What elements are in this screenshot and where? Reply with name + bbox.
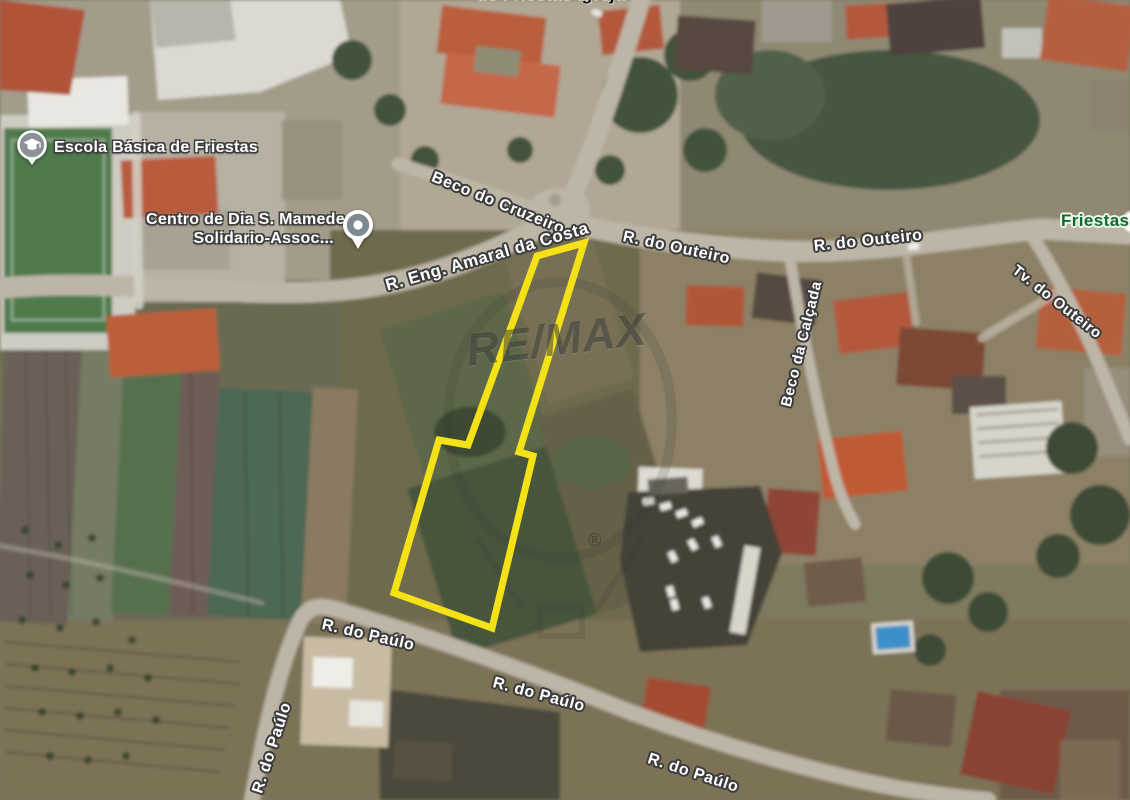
swimming-pool — [871, 621, 915, 655]
graduation-cap-pin-icon — [16, 130, 48, 166]
poi-day-center-label: Centro de Dia S. Mamede Solidario-Assoc.… — [146, 210, 334, 248]
map-pin-icon — [339, 208, 377, 250]
registered-mark: ® — [588, 530, 601, 551]
terrain — [0, 0, 1130, 800]
poi-school-label: Escola Básica de Friestas — [54, 139, 258, 157]
satellite-imagery — [0, 0, 1130, 800]
partial-top-poi-label[interactable]: de Friestas Igreja — [476, 0, 625, 5]
locality-label-friestas[interactable]: Friestas — [1061, 211, 1129, 231]
poi-day-center[interactable]: Centro de Dia S. Mamede Solidario-Assoc.… — [146, 208, 377, 250]
poi-school[interactable]: Escola Básica de Friestas — [16, 130, 258, 166]
satellite-map-canvas[interactable]: RE/MAX ® de Friestas Igreja Escola Básic… — [0, 0, 1130, 800]
